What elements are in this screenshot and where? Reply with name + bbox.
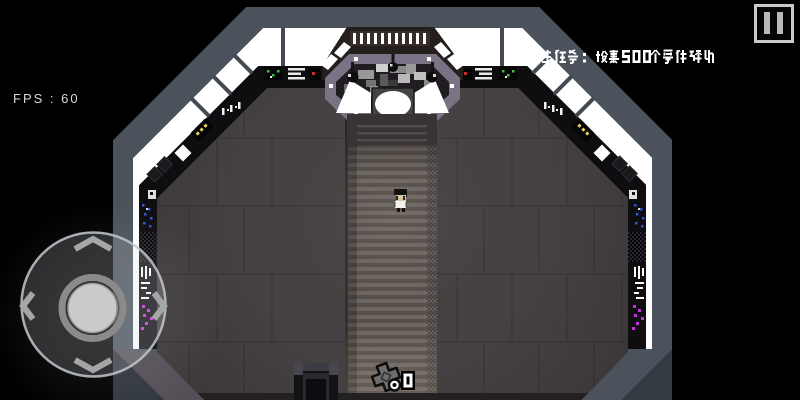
svg-text:FPS : 60: FPS : 60 — [13, 91, 80, 106]
